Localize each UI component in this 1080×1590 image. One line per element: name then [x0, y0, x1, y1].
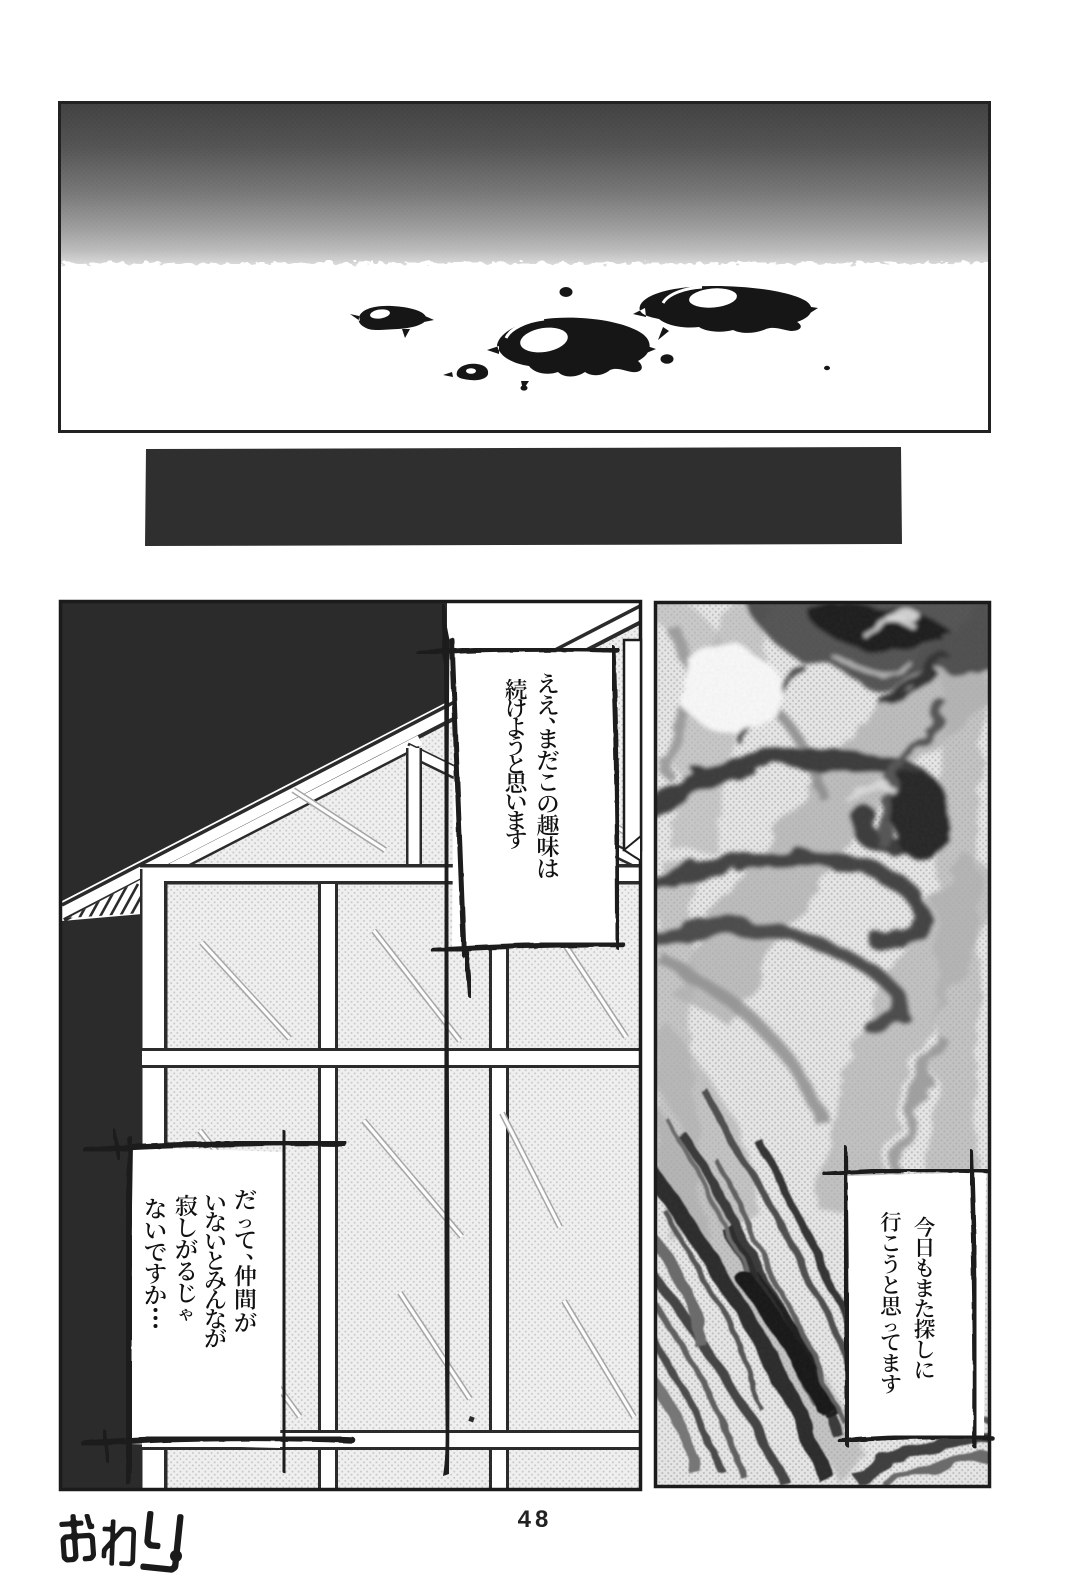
svg-text:48: 48	[518, 1506, 553, 1533]
